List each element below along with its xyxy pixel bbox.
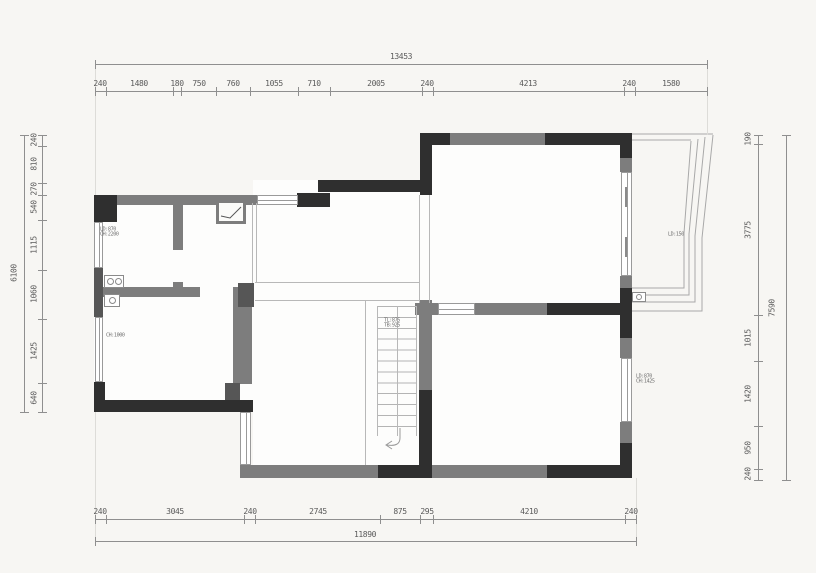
dim-label: 1425 (30, 342, 39, 360)
wall-segment (173, 203, 183, 250)
window (257, 195, 298, 205)
dim-total-line-right (786, 135, 787, 480)
dim-label: 4213 (519, 79, 537, 88)
dim-line-bottom (95, 519, 636, 520)
partition-line (419, 195, 420, 303)
stair-label: TL:875 TB:925 (384, 318, 400, 328)
bedroom-label: LD:870 CH:1425 (636, 374, 655, 384)
wall-segment (318, 180, 432, 192)
dim-label: 2005 (367, 79, 385, 88)
landing-line (255, 282, 419, 283)
dim-label: 875 (393, 507, 406, 516)
wall-segment (620, 422, 632, 443)
dim-label: 180 (170, 79, 183, 88)
dim-label: 1115 (30, 236, 39, 254)
dim-label: 1015 (744, 329, 753, 347)
shaft-diagonal (219, 203, 243, 221)
marker-dot (115, 278, 122, 285)
wall-segment (238, 283, 254, 307)
window (240, 412, 251, 465)
window (438, 303, 475, 315)
wall-segment (432, 465, 547, 478)
wall-segment (240, 465, 378, 478)
storage-label: CH:1000 (106, 333, 125, 338)
landing-line (255, 300, 419, 301)
wall-segment (547, 303, 632, 315)
wall-segment (94, 268, 103, 317)
balcony-label: LD:150 (668, 232, 684, 237)
dim-label: 295 (420, 507, 433, 516)
dim-label: 950 (744, 441, 753, 454)
switch-marker (104, 294, 120, 307)
dim-label: 1580 (662, 79, 680, 88)
dim-total-left: 6100 (10, 264, 19, 282)
dim-label: 190 (744, 132, 753, 145)
dim-label: 240 (243, 507, 256, 516)
dim-label: 2745 (309, 507, 327, 516)
wall-segment (98, 400, 253, 412)
wall-segment (450, 133, 545, 145)
wall-segment (420, 133, 432, 195)
dim-line-right (758, 135, 759, 480)
wall-segment (419, 300, 432, 390)
dim-label: 640 (30, 391, 39, 404)
dim-label: 240 (93, 79, 106, 88)
outlet-marker (104, 275, 124, 288)
dim-total-line-top (95, 64, 707, 65)
dim-total-line-bottom (95, 541, 636, 542)
dim-label: 3775 (744, 221, 753, 239)
extension-line (707, 68, 708, 135)
dim-label: 750 (192, 79, 205, 88)
dim-line-left (42, 135, 43, 412)
wall-segment (297, 193, 330, 207)
wall-segment (419, 390, 432, 478)
wall-segment (547, 465, 632, 478)
dim-total-top: 13453 (390, 52, 412, 61)
dim-line-top (95, 91, 707, 92)
dim-total-bottom: 11890 (354, 530, 376, 539)
closet-label: LD:870 CH:2200 (100, 227, 119, 237)
dim-label: 240 (744, 467, 753, 480)
dim-total-line-left (24, 135, 25, 412)
dim-label: 240 (30, 133, 39, 146)
stair-direction-arrow (381, 428, 405, 454)
partition-line (252, 203, 253, 283)
wall-segment (94, 195, 117, 222)
wall-segment (475, 303, 547, 315)
dim-total-right: 7590 (768, 299, 777, 317)
dim-label: 1060 (30, 285, 39, 303)
dim-label: 270 (30, 182, 39, 195)
dim-label: 540 (30, 200, 39, 213)
dim-label: 240 (624, 507, 637, 516)
wall-segment (620, 338, 632, 358)
marker-dot (109, 297, 116, 304)
dim-label: 1055 (265, 79, 283, 88)
marker-dot (107, 278, 114, 285)
dim-label: 1480 (130, 79, 148, 88)
dim-label: 1420 (744, 385, 753, 403)
window (621, 358, 632, 422)
wall-segment (545, 133, 632, 145)
partition-line (429, 195, 430, 303)
dim-label: 240 (622, 79, 635, 88)
dim-label: 760 (226, 79, 239, 88)
flue-shaft (216, 200, 246, 224)
dim-label: 240 (93, 507, 106, 516)
floor-plan-canvas: TL:875 TB:925 LD:870 CH:2200 CH:1000 LD:… (0, 0, 816, 573)
bay-corner-marker (632, 292, 646, 302)
dim-label: 710 (307, 79, 320, 88)
window (95, 317, 103, 382)
partition-line (256, 203, 257, 283)
wall-segment (432, 133, 450, 145)
dim-label: 3045 (166, 507, 184, 516)
dim-label: 240 (420, 79, 433, 88)
marker-dot (636, 294, 642, 300)
wall-segment (225, 383, 240, 400)
dim-label: 810 (30, 157, 39, 170)
stairwell-line (365, 300, 366, 465)
dim-label: 4210 (520, 507, 538, 516)
wall-segment (173, 282, 183, 289)
